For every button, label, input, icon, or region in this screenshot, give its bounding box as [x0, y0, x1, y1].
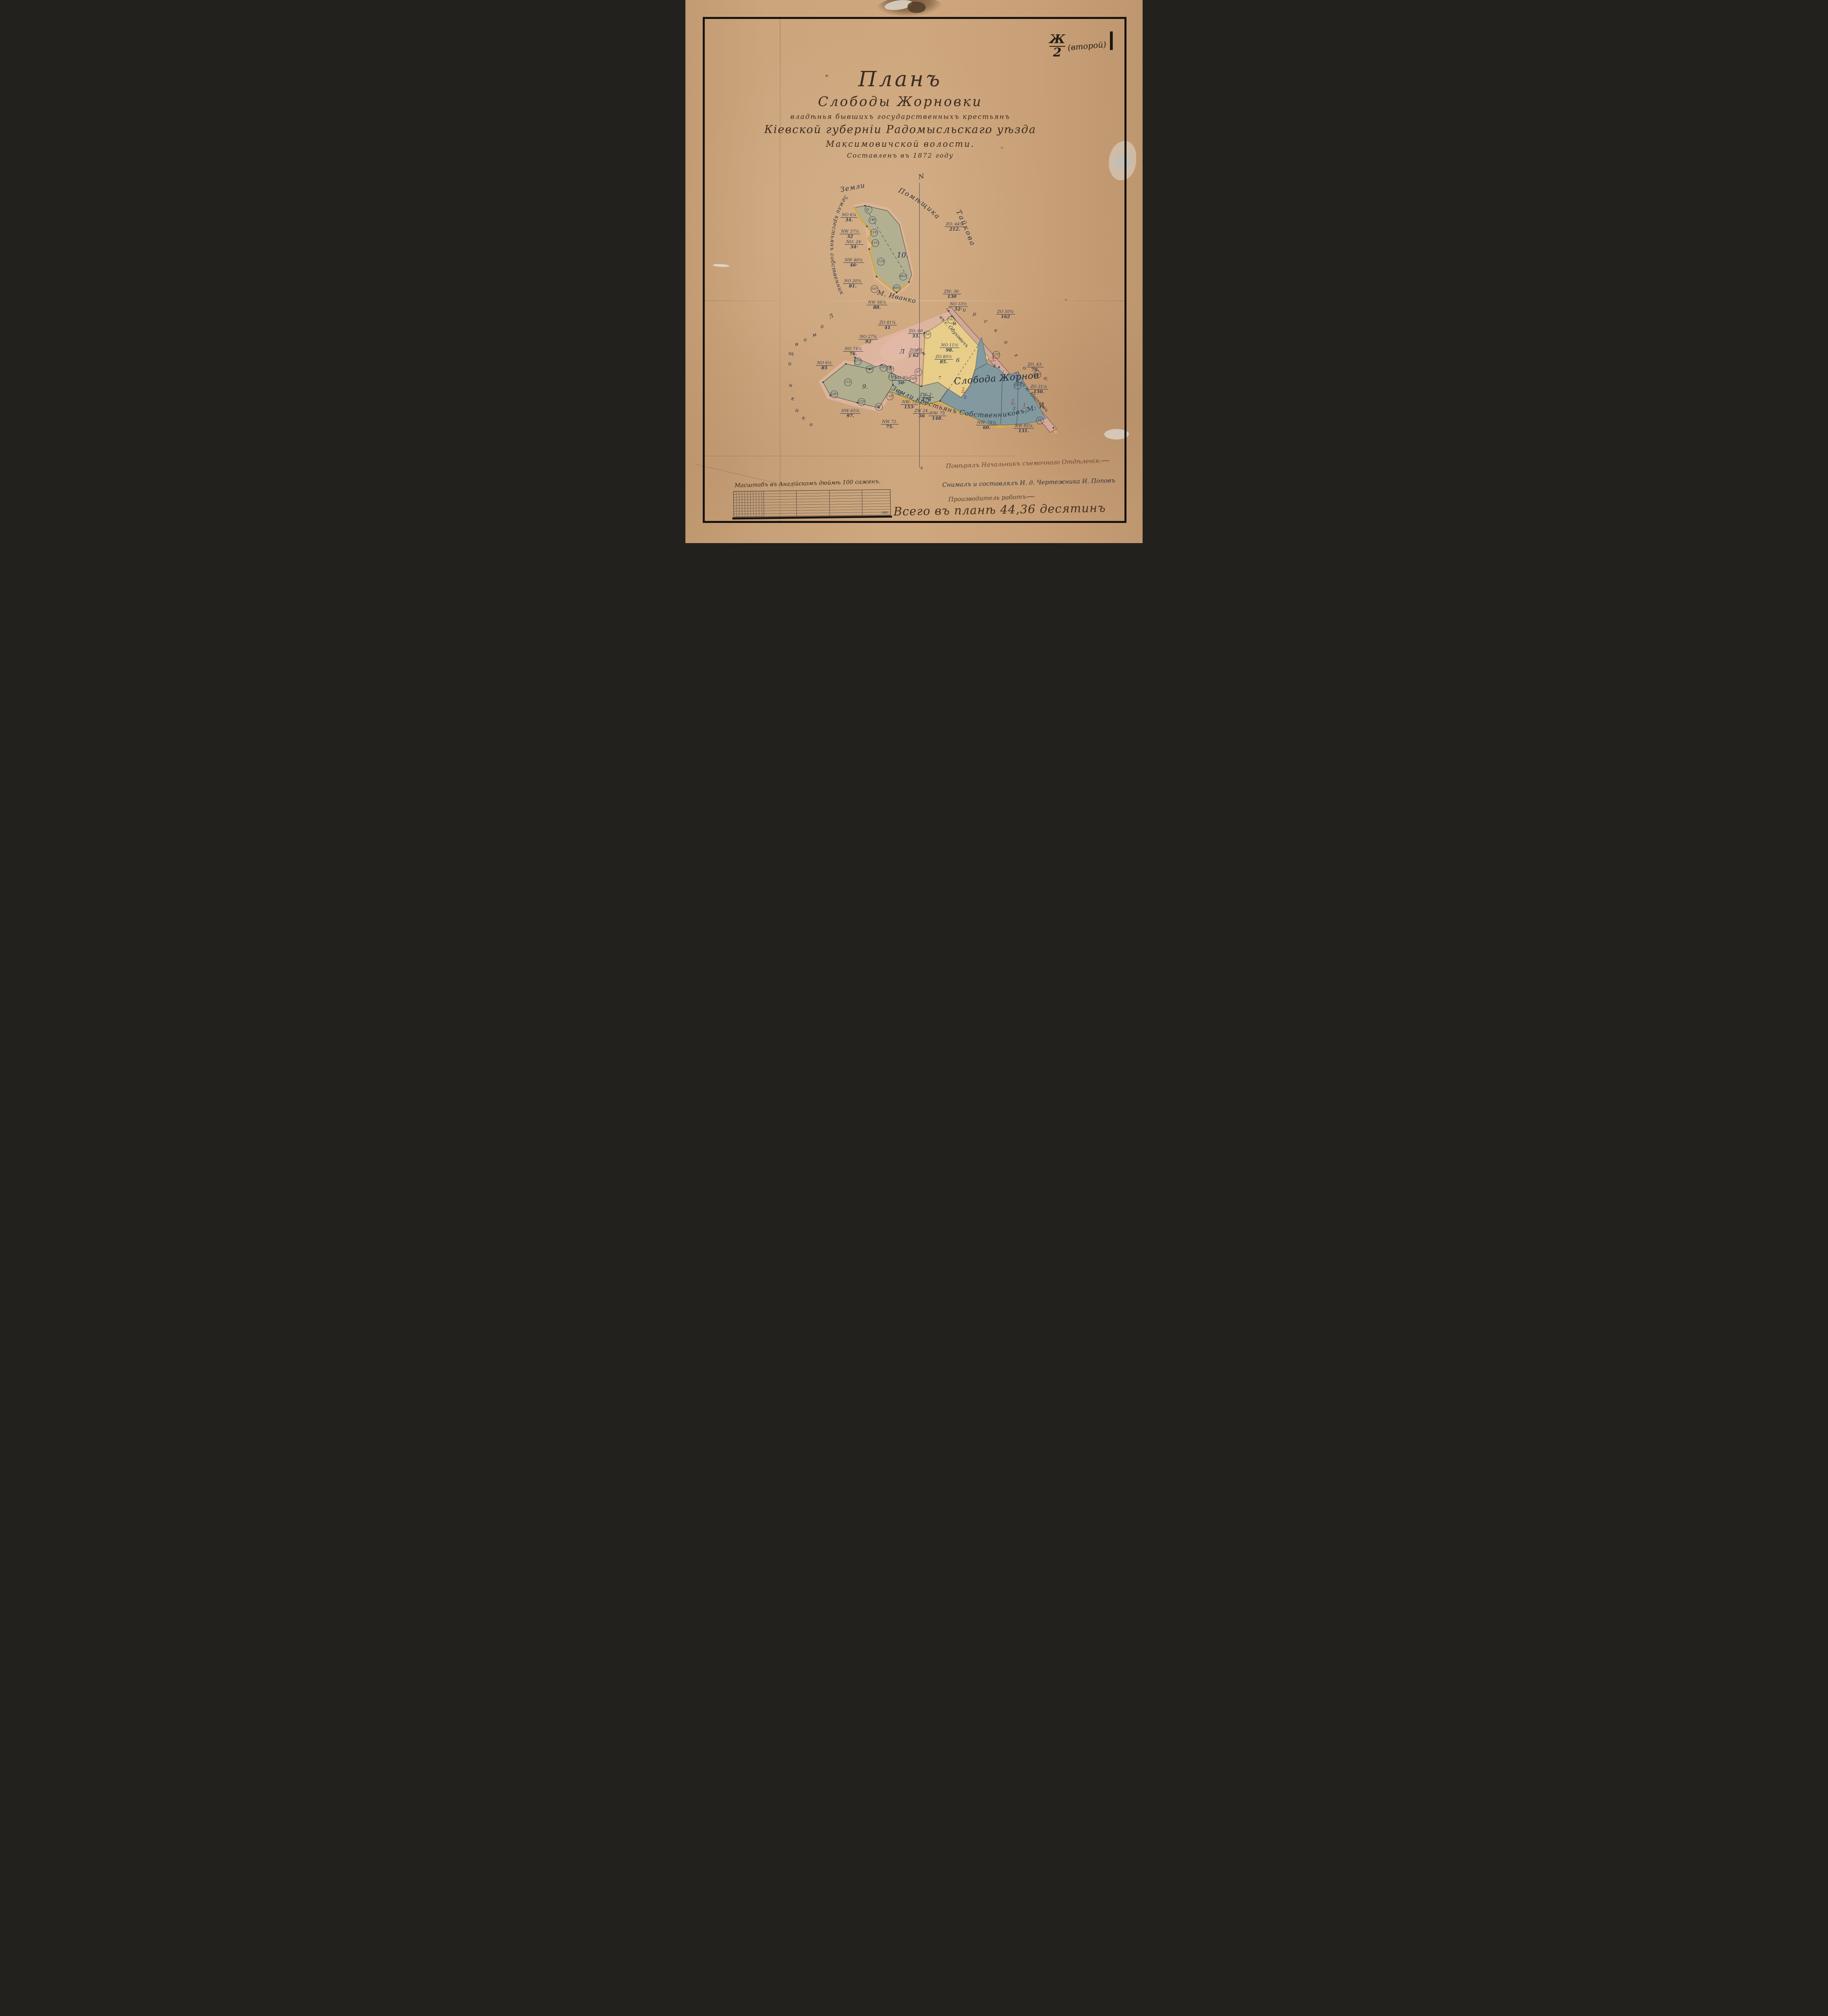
bearing-label: NW: 74¼60. — [976, 421, 997, 430]
angle-label: 105· — [880, 364, 887, 371]
boundary-label-left: Земли крестьянъ собственниковъ — [685, 0, 849, 296]
red-parcel-number: 2 — [1010, 398, 1016, 405]
angle-label: 158 — [886, 393, 893, 400]
boundary-label-top-1: Земли — [840, 181, 866, 194]
scale-bar-tick: 30 — [754, 516, 758, 519]
scale-bar-division — [796, 491, 797, 516]
bearing-label: NW 72.75. — [881, 420, 899, 429]
angle-label: 115¾ — [871, 240, 879, 247]
bearing-label: NO: 24·34· — [845, 240, 863, 250]
angle-label: 97½ — [854, 357, 862, 365]
scale-bar-tick: 10 — [760, 516, 764, 519]
angle-label: 118¾ — [870, 229, 878, 236]
angle-label: 173¼ — [858, 398, 865, 406]
meadow-letter: у — [908, 352, 912, 358]
bearing-label: ZO 85½85. — [934, 355, 953, 364]
bearing-label: NO 11½98. — [940, 343, 960, 353]
bearing-label: NW 40¼46· — [843, 258, 864, 268]
bearing-label: ZW: 36·130 — [943, 289, 961, 299]
bearing-label: ZO 31¼150. — [1029, 385, 1048, 394]
bearing-label: NW 56⅞88. — [867, 300, 887, 310]
parcel-number: 2 — [1013, 406, 1016, 411]
bearing-label: ZO: 44¼212. — [945, 222, 965, 232]
angle-label: 156¾ — [887, 365, 894, 373]
bearing-label: NW: 75148. — [929, 411, 946, 421]
svg-text:Слобода Жорновка.: Слобода Жорновка. — [685, 0, 1039, 387]
bearing-label: NO 6½85 — [816, 360, 833, 370]
parcel-number: 6 — [956, 357, 960, 364]
scale-bar-end-value: 500. — [881, 511, 889, 514]
bearing-label: NO 20¼81. — [843, 279, 863, 289]
signature-flourish: ~ — [1024, 491, 1037, 502]
parcel-number: 4 — [993, 363, 996, 369]
scale-bar-tick: 90 — [735, 517, 739, 520]
angle-label: 108¾ — [830, 390, 838, 398]
svg-text:Земли: Земли — [840, 181, 866, 194]
scale-bar-division — [862, 490, 863, 515]
scale-bar-tick: 50 — [748, 516, 751, 519]
tract-letter-right: и — [963, 307, 966, 313]
angle-label: 165½ — [1034, 371, 1041, 379]
scale-bar-division — [829, 491, 830, 516]
angle-label: 118· — [888, 373, 896, 381]
bearing-label: ZW 24.56 — [913, 409, 930, 419]
svg-text:Земли крестьянъ собственниковъ: Земли крестьянъ собственниковъ — [685, 0, 849, 296]
angle-label: 51· — [864, 206, 872, 213]
angle-label: 99½ — [899, 273, 907, 280]
angle-label: 119 — [877, 258, 885, 266]
parcel-number: 7 — [938, 376, 941, 380]
angle-label: 89¾ — [893, 285, 900, 292]
parcel-number: 1 — [1025, 410, 1027, 414]
tract-letter-left: в — [795, 341, 798, 348]
meadow-letter: ъ — [922, 350, 925, 356]
red-parcel-number: 1 — [1022, 402, 1027, 408]
scale-bar-division — [763, 492, 764, 516]
parcel-number: 9. — [862, 383, 868, 390]
meadow-letter: Л — [899, 348, 905, 355]
bearing-label: ZO 81¾41 — [878, 321, 897, 330]
bearing-label: NO 27¾92 — [858, 335, 878, 344]
compass-south-mark: s — [920, 465, 923, 471]
angle-label: 178· — [923, 395, 931, 402]
angle-label: 169 — [909, 375, 917, 383]
red-parcel-number: 2 — [961, 386, 966, 393]
tract-letter-left: щ — [788, 350, 793, 356]
angle-label: 136 — [868, 216, 876, 224]
bearing-label: NW: 73153· — [901, 400, 918, 409]
red-parcel-number: 4 — [991, 355, 996, 361]
angle-label: 123¾ — [866, 365, 874, 373]
parcel-number: 3 — [1016, 380, 1019, 385]
scale-bar-tick: 70 — [742, 516, 745, 519]
scale-bar-fine-grid — [734, 492, 764, 517]
bearing-label: ZO: 6033. — [908, 329, 924, 339]
scale-bar: 500. 9070503010 — [733, 489, 891, 517]
bearing-label: NO 74½76. — [843, 346, 863, 356]
angle-label: 158· — [923, 331, 931, 338]
map-sheet: Ж 2 (второй) Планъ Слободы Жорновки влад… — [685, 0, 1143, 543]
meadow-letter: г — [916, 347, 918, 353]
angle-label: 97· — [915, 368, 922, 376]
angle-label: 65 — [1036, 417, 1043, 424]
angle-label: 96· — [875, 403, 883, 410]
tract-letter-left: и — [788, 361, 791, 367]
bearing-label: NW 65¼97. — [840, 409, 861, 419]
parcel-number: 10. — [897, 251, 908, 260]
signature-flourish: ~ — [1099, 455, 1112, 466]
bearing-label: NW 37¼32 — [840, 229, 860, 239]
red-parcel-number: 3 — [1013, 372, 1018, 378]
parcel-number: 5 — [964, 395, 967, 400]
settlement-label: Слобода Жорновка. — [685, 0, 1039, 387]
bearing-label: NO 6¼34. — [841, 213, 858, 223]
parcel-number: 8 — [897, 389, 902, 397]
bearing-label: NW 85¼131. — [1014, 424, 1034, 433]
angle-label: 105¾ — [871, 285, 879, 293]
bearing-label: ZO, 43·70. — [1026, 362, 1044, 372]
angle-label: 112 — [844, 379, 852, 386]
bearing-label: ZO 50¾162 — [996, 310, 1015, 319]
